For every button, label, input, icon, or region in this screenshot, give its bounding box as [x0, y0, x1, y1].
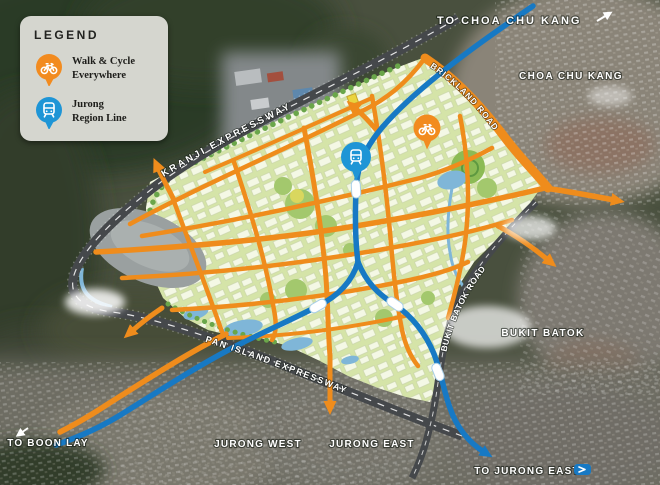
bicycle-icon	[34, 52, 64, 86]
label-to-jurong-east: TO JURONG EAST	[474, 466, 580, 477]
train-icon	[34, 95, 64, 129]
label-jurong-west: JURONG WEST	[214, 439, 302, 450]
tengah-masterplan-map: KRANJI EXPRESSWAY BRICKLAND ROAD PAN ISL…	[0, 0, 660, 485]
legend-jrl-line1: Jurong	[72, 99, 104, 110]
legend-label-jrl: Jurong Region Line	[72, 98, 127, 125]
label-to-choa-chu-kang: TO CHOA CHU KANG	[437, 15, 581, 27]
legend-walk-cycle-line2: Everywhere	[72, 70, 126, 81]
label-choa-chu-kang: CHOA CHU KANG	[519, 71, 623, 82]
legend: LEGEND Walk & Cycle Everywhere Jurong Re…	[20, 16, 168, 141]
label-bukit-batok: BUKIT BATOK	[501, 328, 584, 339]
label-to-boon-lay: TO BOON LAY	[7, 438, 89, 449]
legend-jrl-line2: Region Line	[72, 113, 127, 124]
jrl-logo-icon	[574, 464, 591, 475]
label-jurong-east: JURONG EAST	[329, 439, 414, 450]
landmark-circle	[290, 189, 304, 203]
legend-item-walk-cycle: Walk & Cycle Everywhere	[34, 52, 158, 86]
legend-label-walk-cycle: Walk & Cycle Everywhere	[72, 55, 135, 82]
legend-walk-cycle-line1: Walk & Cycle	[72, 56, 135, 67]
jrl-station	[351, 180, 361, 198]
legend-item-jurong-region-line: Jurong Region Line	[34, 95, 158, 129]
legend-title: LEGEND	[34, 28, 158, 42]
